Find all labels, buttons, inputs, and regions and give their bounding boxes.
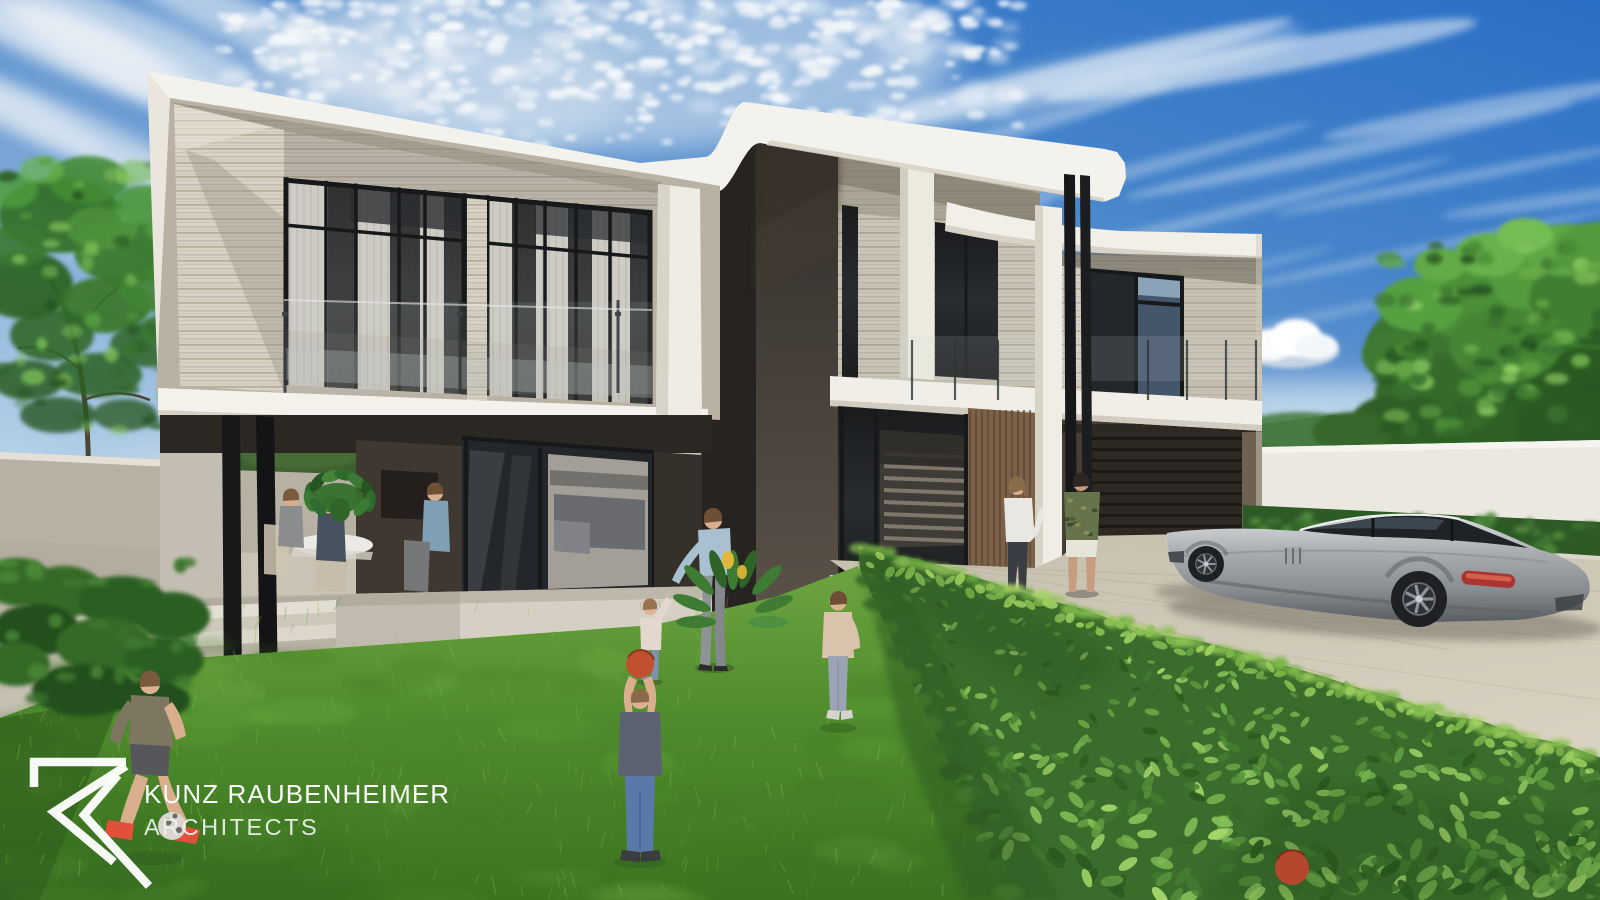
svg-text:ARCHITECTS: ARCHITECTS — [144, 814, 319, 840]
svg-text:KUNZ RAUBENHEIMER: KUNZ RAUBENHEIMER — [144, 779, 450, 809]
